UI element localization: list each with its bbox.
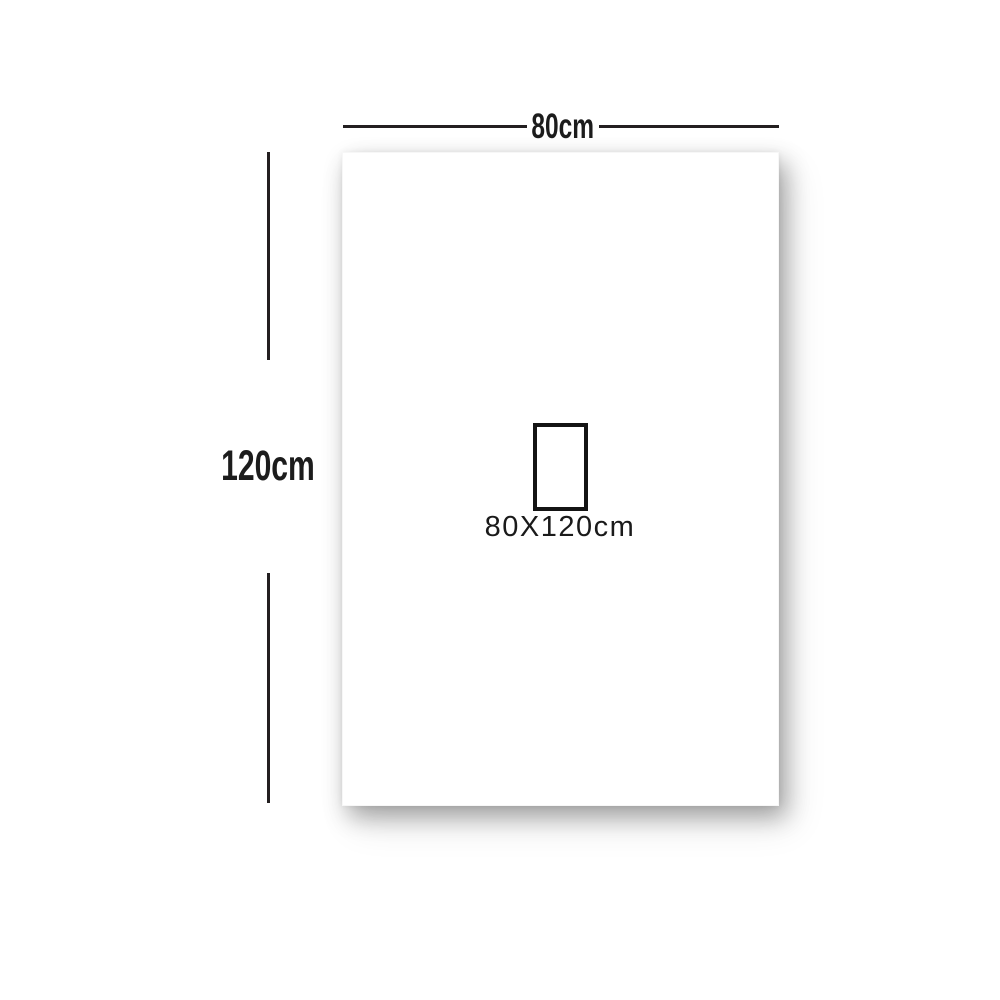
dimension-diagram: 80cm 120cm 80X120cm: [0, 0, 1000, 1000]
height-dimension-label-text: 120cm: [221, 445, 315, 488]
size-indicator: 80X120cm: [492, 423, 628, 542]
width-dimension: 80cm: [343, 104, 779, 148]
height-dimension-label: 120cm: [201, 360, 335, 573]
size-indicator-rect: [533, 423, 588, 511]
size-label: 80X120cm: [485, 513, 636, 542]
height-dimension-line-bottom: [267, 573, 270, 803]
width-dimension-label: 80cm: [537, 109, 589, 144]
width-dimension-line-right: [599, 125, 779, 128]
width-dimension-label-text: 80cm: [532, 109, 595, 144]
height-dimension-line-top: [267, 152, 270, 360]
width-dimension-line-left: [343, 125, 527, 128]
height-dimension: 120cm: [218, 152, 318, 803]
